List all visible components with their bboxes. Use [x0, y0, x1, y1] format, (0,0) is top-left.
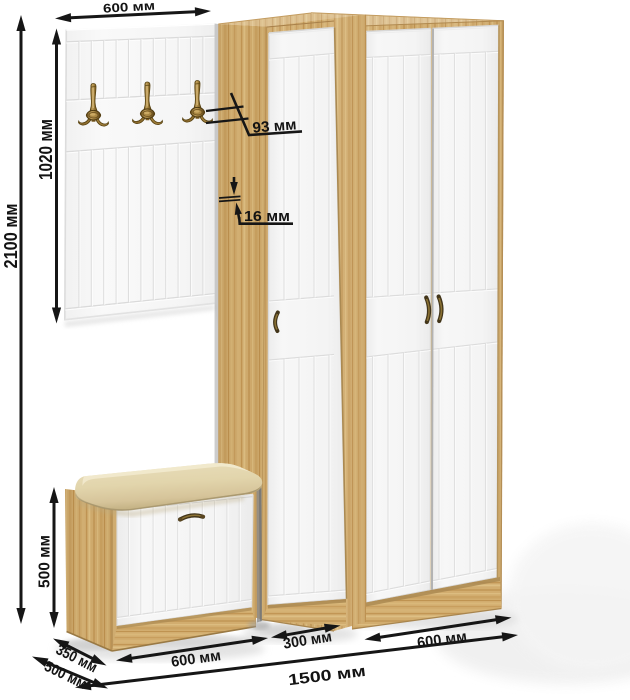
- svg-text:2100 мм: 2100 мм: [1, 204, 21, 269]
- svg-text:93 мм: 93 мм: [252, 116, 297, 136]
- svg-text:16 мм: 16 мм: [244, 208, 290, 225]
- svg-text:1020 мм: 1020 мм: [36, 119, 56, 180]
- svg-text:500 мм: 500 мм: [37, 535, 54, 588]
